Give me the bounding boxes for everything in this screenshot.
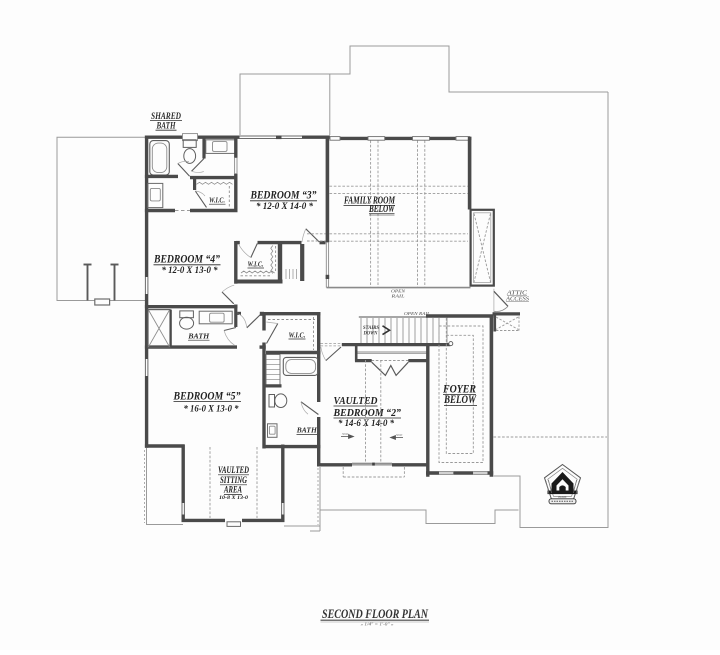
svg-text:AREA: AREA <box>223 485 242 496</box>
svg-text:BATH: BATH <box>187 331 210 340</box>
svg-text:VAULTED: VAULTED <box>334 395 378 407</box>
svg-text:RAIL: RAIL <box>390 293 405 298</box>
svg-text:BEDROOM “5”: BEDROOM “5” <box>173 388 241 402</box>
svg-text:DOWN: DOWN <box>363 332 378 337</box>
svg-text:BELOW: BELOW <box>443 394 476 406</box>
svg-text:10-8 X 13-0: 10-8 X 13-0 <box>219 495 248 501</box>
svg-text:W.I.C.: W.I.C. <box>248 260 264 268</box>
svg-text:* 12-0 X 13-0 *: * 12-0 X 13-0 * <box>162 265 218 276</box>
svg-text:BEDROOM “3”: BEDROOM “3” <box>250 188 317 202</box>
svg-text:STAIRS: STAIRS <box>363 326 379 331</box>
svg-text:BELOW: BELOW <box>368 203 395 215</box>
svg-text:* 12-0 X 14-0 *: * 12-0 X 14-0 * <box>256 201 313 212</box>
svg-text:* 16-0 X 13-0 *: * 16-0 X 13-0 * <box>184 403 239 414</box>
svg-text:5000: 5000 <box>396 433 403 437</box>
svg-text:» 1/4" = 1'-0" «: » 1/4" = 1'-0" « <box>361 621 395 626</box>
svg-text:W.I.C.: W.I.C. <box>209 197 225 205</box>
svg-text:W.I.C.: W.I.C. <box>289 331 306 339</box>
svg-text:SECOND FLOOR PLAN: SECOND FLOOR PLAN <box>322 607 429 621</box>
svg-text:* 14-6 X 14-0 *: * 14-6 X 14-0 * <box>338 418 394 429</box>
svg-text:BATH: BATH <box>296 426 318 435</box>
svg-text:5000: 5000 <box>342 432 349 436</box>
svg-text:BEDROOM “4”: BEDROOM “4” <box>153 252 220 266</box>
svg-text:BEDROOM “2”: BEDROOM “2” <box>333 407 402 419</box>
